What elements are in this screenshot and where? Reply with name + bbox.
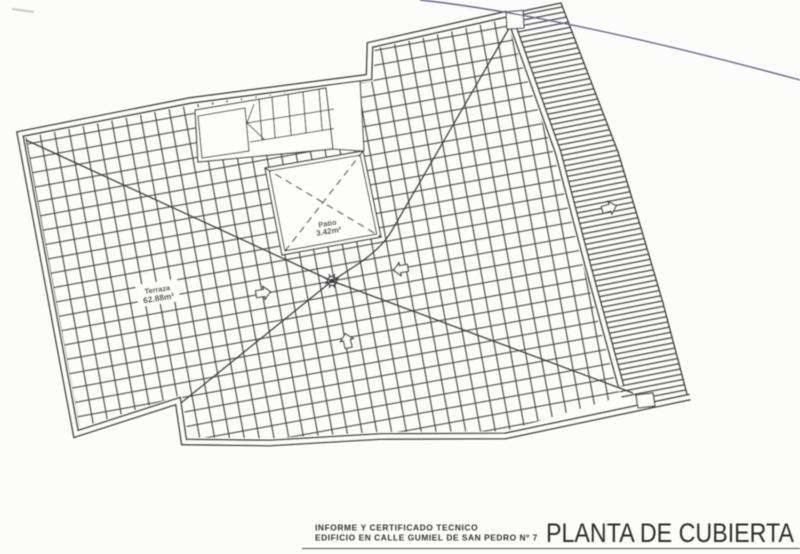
svg-text:PLANTA DE CUBIERTA: PLANTA DE CUBIERTA	[546, 518, 794, 548]
svg-text:INFORME Y CERTIFICADO TECNICO: INFORME Y CERTIFICADO TECNICO	[315, 523, 478, 533]
svg-text:EDIFICIO EN CALLE GUMIEL DE SA: EDIFICIO EN CALLE GUMIEL DE SAN PEDRO Nº…	[315, 533, 538, 543]
